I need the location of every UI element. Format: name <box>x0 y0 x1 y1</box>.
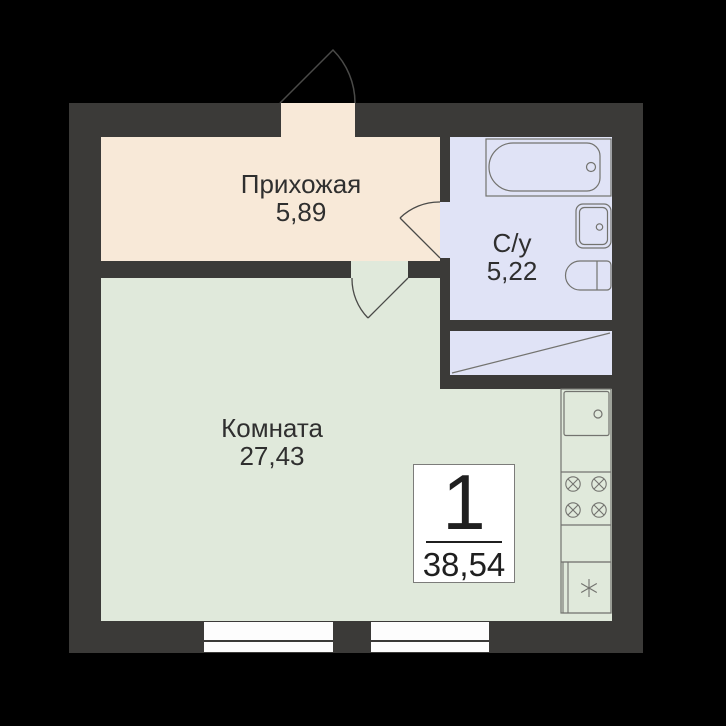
room-area: 27,43 <box>221 442 323 470</box>
window-frame-line <box>371 640 489 642</box>
apartment-rooms-count: 1 <box>442 467 485 537</box>
room-label: Комната 27,43 <box>221 414 323 470</box>
room-area: 5,89 <box>241 198 361 226</box>
room-door-opening <box>351 261 408 278</box>
window-2 <box>371 622 489 652</box>
entrance-opening <box>281 103 355 137</box>
room-name: Прихожая <box>241 170 361 198</box>
bathroom-door-opening <box>440 202 450 258</box>
room-name: Комната <box>221 414 323 442</box>
floorplan: Прихожая 5,89 С/у 5,22 Комната 27,43 1 3… <box>0 0 726 726</box>
bathroom-label: С/у 5,22 <box>487 229 538 285</box>
window-frame-line <box>204 640 333 642</box>
badge-divider <box>426 541 502 543</box>
apartment-badge: 1 38,54 <box>413 464 515 583</box>
hallway-label: Прихожая 5,89 <box>241 170 361 226</box>
entrance-door-icon <box>280 50 355 103</box>
shaft-floor <box>450 331 612 375</box>
room-area: 5,22 <box>487 257 538 285</box>
room-name: С/у <box>487 229 538 257</box>
apartment-total-area: 38,54 <box>423 548 506 581</box>
window-1 <box>204 622 333 652</box>
